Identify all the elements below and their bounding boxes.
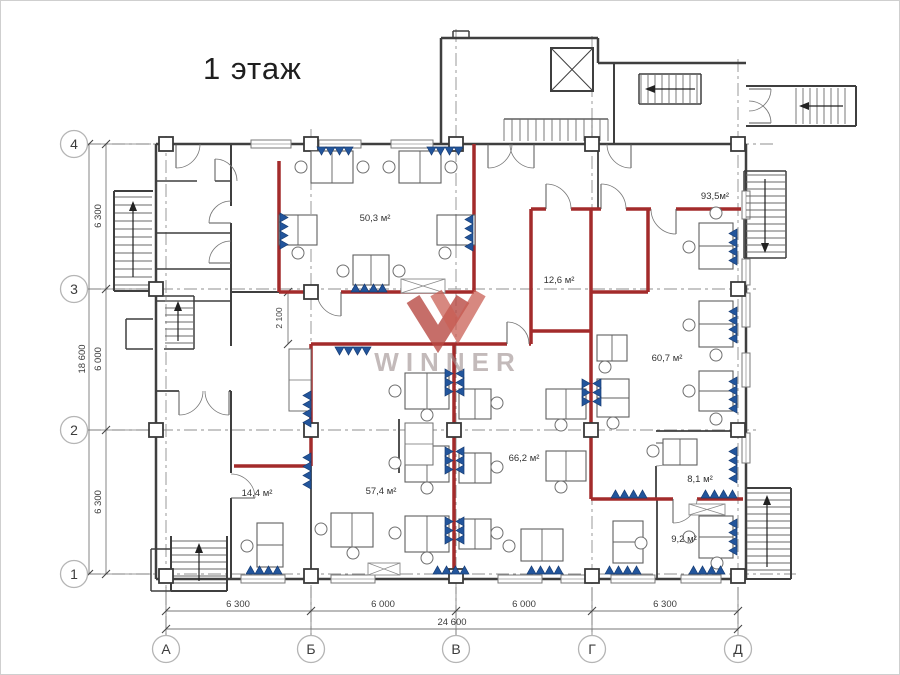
- radiator-marker-icon: [620, 490, 629, 498]
- door-swing: [209, 241, 231, 263]
- radiator-marker-icon: [729, 456, 737, 465]
- radiator-marker-icon: [638, 490, 647, 498]
- chair: [292, 247, 304, 259]
- column: [731, 282, 745, 296]
- radiator-marker-icon: [629, 490, 638, 498]
- stair-arrow-icon: [129, 201, 137, 211]
- chair: [421, 482, 433, 494]
- radiator-marker-icon: [689, 566, 698, 574]
- radiator-marker-icon: [729, 465, 737, 474]
- door-swing: [205, 391, 229, 415]
- radiator-marker-icon: [582, 379, 590, 388]
- radiator-marker-icon: [545, 566, 554, 574]
- chair: [445, 161, 457, 173]
- dim-label: 6 000: [512, 599, 536, 610]
- axis-column-label: В: [451, 641, 460, 657]
- radiator-marker-icon: [605, 566, 614, 574]
- floor-plan-canvas: 6 3006 0006 0006 30024 6006 3006 0006 30…: [0, 0, 900, 675]
- dim-label: 6 000: [371, 599, 395, 610]
- dim-label: 6 000: [93, 347, 104, 371]
- axis-column-label: Г: [588, 641, 596, 657]
- door-swing: [651, 209, 676, 234]
- column: [585, 569, 599, 583]
- room-area-label: 14,4 м²: [242, 488, 273, 499]
- radiator-marker-icon: [729, 447, 737, 456]
- door-swing: [488, 144, 512, 168]
- radiator-marker-icon: [611, 490, 620, 498]
- column: [304, 285, 318, 299]
- radiator-marker-icon: [698, 566, 707, 574]
- chair: [383, 161, 395, 173]
- chair: [389, 527, 401, 539]
- radiator-marker-icon: [614, 566, 623, 574]
- door-swing: [317, 292, 341, 316]
- radiator-marker-icon: [728, 490, 737, 498]
- dim-label: 2 100: [274, 307, 284, 329]
- radiator-marker-icon: [632, 566, 641, 574]
- stair-arrow-icon: [799, 102, 809, 110]
- door-swing: [749, 101, 771, 123]
- radiator-marker-icon: [344, 347, 353, 355]
- stair-arrow-icon: [645, 85, 655, 93]
- column: [304, 569, 318, 583]
- chair: [710, 349, 722, 361]
- chair: [421, 552, 433, 564]
- door-swing: [209, 201, 231, 223]
- column: [585, 137, 599, 151]
- stair-arrow-icon: [174, 301, 182, 311]
- radiator-marker-icon: [701, 490, 710, 498]
- room-area-label: 93,5м²: [701, 191, 729, 202]
- dim-label: 6 300: [93, 204, 104, 228]
- radiator-marker-icon: [303, 453, 311, 462]
- chair: [607, 417, 619, 429]
- radiator-marker-icon: [246, 566, 255, 574]
- door-swing: [507, 322, 529, 344]
- radiator-marker-icon: [433, 566, 442, 574]
- column: [584, 423, 598, 437]
- door-swing: [607, 144, 631, 168]
- radiator-marker-icon: [303, 462, 311, 471]
- room-area-label: 50,3 м²: [360, 213, 391, 224]
- chair: [389, 385, 401, 397]
- chair: [357, 161, 369, 173]
- radiator-marker-icon: [719, 490, 728, 498]
- column: [304, 137, 318, 151]
- chair: [491, 397, 503, 409]
- column: [159, 137, 173, 151]
- chair: [503, 540, 515, 552]
- door-swing: [215, 159, 237, 181]
- door-swing: [179, 391, 203, 415]
- radiator-marker-icon: [303, 480, 311, 489]
- axis-row-label: 1: [70, 566, 78, 582]
- chair: [241, 540, 253, 552]
- radiator-marker-icon: [353, 347, 362, 355]
- column: [149, 423, 163, 437]
- chair: [683, 241, 695, 253]
- column: [731, 569, 745, 583]
- chair: [347, 547, 359, 559]
- column: [159, 569, 173, 583]
- column: [731, 423, 745, 437]
- radiator-marker-icon: [536, 566, 545, 574]
- radiator-marker-icon: [362, 347, 371, 355]
- column: [731, 137, 745, 151]
- dim-label: 24 600: [437, 617, 466, 628]
- radiator-marker-icon: [456, 369, 464, 378]
- radiator-marker-icon: [554, 566, 563, 574]
- column: [447, 423, 461, 437]
- chair: [421, 409, 433, 421]
- door-swing: [749, 89, 771, 111]
- door-swing: [510, 144, 534, 168]
- door-swing: [176, 144, 200, 168]
- floor-title: 1 этаж: [203, 51, 302, 87]
- radiator-marker-icon: [456, 378, 464, 387]
- radiator-marker-icon: [729, 474, 737, 483]
- axis-row-label: 3: [70, 281, 78, 297]
- chair: [555, 419, 567, 431]
- room-area-label: 9,2 м²: [671, 534, 697, 545]
- chair: [295, 161, 307, 173]
- dim-label: 6 300: [653, 599, 677, 610]
- radiator-marker-icon: [303, 471, 311, 480]
- chair: [683, 319, 695, 331]
- axis-row-label: 4: [70, 136, 78, 152]
- chair: [647, 445, 659, 457]
- axis-column-label: Б: [306, 641, 315, 657]
- chair: [683, 385, 695, 397]
- chair: [389, 457, 401, 469]
- floor-plan-drawing: 6 3006 0006 0006 30024 6006 3006 0006 30…: [1, 1, 899, 674]
- door-swing: [601, 184, 626, 209]
- chair: [337, 265, 349, 277]
- room-area-label: 8,1 м²: [687, 474, 713, 485]
- chair: [491, 527, 503, 539]
- door-swing: [546, 184, 571, 209]
- axis-column-label: А: [161, 641, 171, 657]
- chair: [599, 361, 611, 373]
- room-area-label: 57,4 м²: [366, 486, 397, 497]
- radiator-marker-icon: [335, 347, 344, 355]
- room-area-label: 66,2 м²: [509, 453, 540, 464]
- chair: [491, 461, 503, 473]
- radiator-marker-icon: [623, 566, 632, 574]
- room-area-label: 60,7 м²: [652, 353, 683, 364]
- radiator-marker-icon: [527, 566, 536, 574]
- column: [149, 282, 163, 296]
- axis-row-label: 2: [70, 422, 78, 438]
- dim-label: 6 300: [93, 490, 104, 514]
- dim-label: 6 300: [226, 599, 250, 610]
- chair: [315, 523, 327, 535]
- chair: [635, 537, 647, 549]
- chair: [393, 265, 405, 277]
- room-area-label: 12,6 м²: [544, 275, 575, 286]
- radiator-marker-icon: [710, 490, 719, 498]
- chair: [710, 413, 722, 425]
- stair-arrow-icon: [761, 243, 769, 253]
- chair: [439, 247, 451, 259]
- axis-column-label: Д: [733, 641, 743, 657]
- chair: [555, 481, 567, 493]
- dim-label: 18 600: [77, 344, 88, 373]
- chair: [710, 207, 722, 219]
